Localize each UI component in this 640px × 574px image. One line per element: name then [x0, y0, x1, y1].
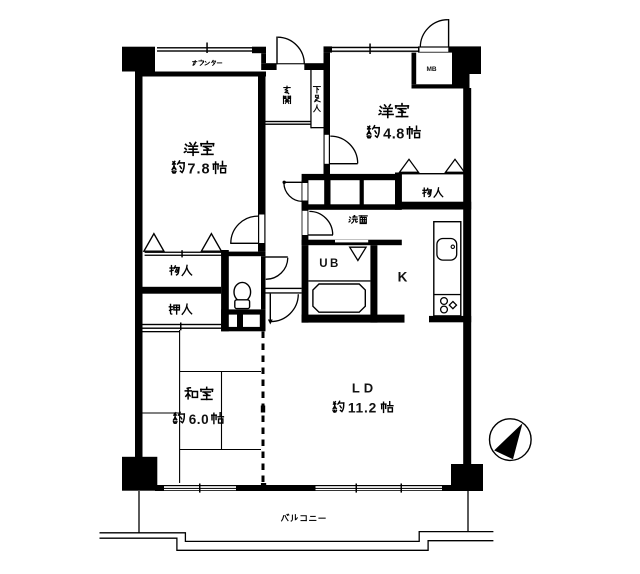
svg-text:K: K [398, 270, 408, 285]
svg-text:4.8: 4.8 [383, 126, 405, 142]
svg-text:LD: LD [352, 381, 377, 396]
svg-text:UB: UB [319, 258, 341, 270]
svg-text:6.0: 6.0 [189, 412, 210, 427]
svg-text:11.2: 11.2 [348, 400, 377, 415]
svg-text:MB: MB [426, 66, 436, 73]
svg-text:7.8: 7.8 [187, 162, 210, 178]
